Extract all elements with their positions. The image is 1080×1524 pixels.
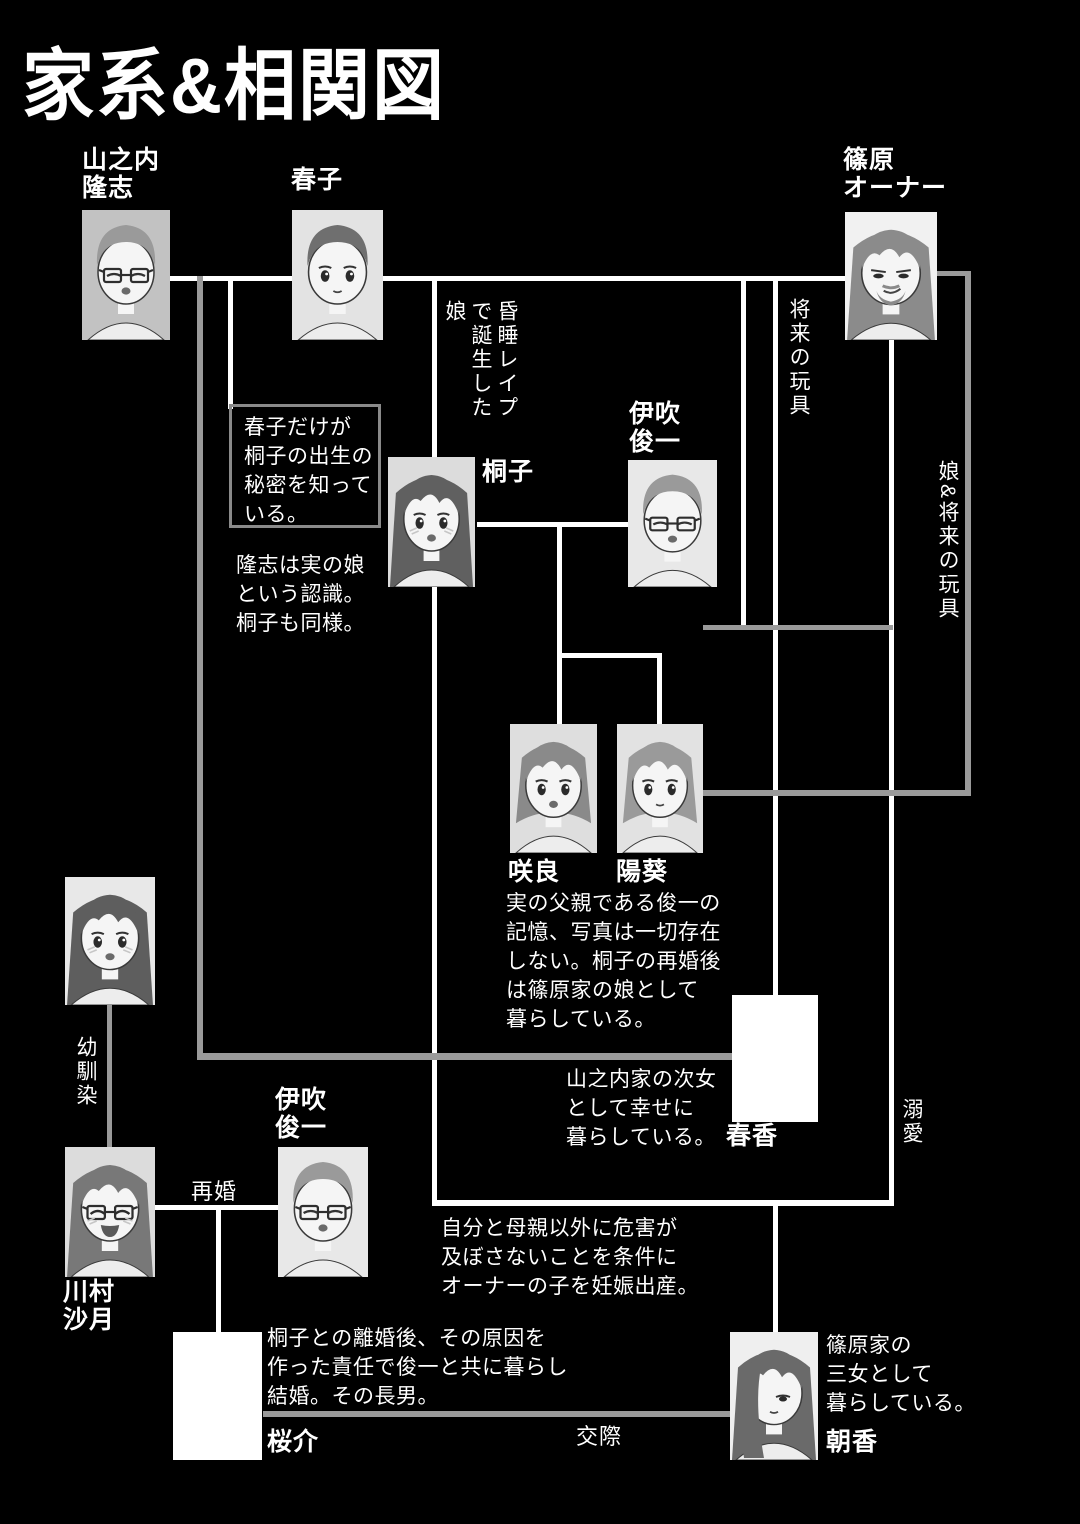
- portrait-friend: [65, 877, 155, 1005]
- note-haruko-secret: 春子だけが 桐子の出生の 秘密を知って いる。: [244, 414, 373, 530]
- relationship-dating: 交際: [576, 1419, 622, 1451]
- line-drop-to-ousuke: [216, 1205, 221, 1334]
- family-relationship-chart: 家系&相関図 山之内 隆志 春子 篠原 オーナー 桐子 伊吹 俊一 咲良 陽葵 …: [0, 0, 1080, 1524]
- label-asaka: 朝香: [826, 1428, 878, 1456]
- line-drop-to-asaka: [773, 1203, 778, 1334]
- line-drop-to-haruka: [773, 276, 778, 997]
- portrait-satsuki: [65, 1147, 155, 1277]
- relationship-remarriage: 再婚: [191, 1174, 237, 1206]
- relationship-childhood-friend: 幼馴染: [72, 1036, 98, 1128]
- gline-owner-haruka-connector: [703, 625, 893, 630]
- line-owner-down: [889, 340, 894, 1203]
- placeholder-box-ousuke: [173, 1332, 262, 1460]
- relationship-comatose-rape-daughter: 昏睡レイプで誕生した娘: [441, 300, 519, 438]
- relationship-doting: 溺愛: [898, 1098, 924, 1162]
- note-asaka: 篠原家の 三女として 暮らしている。: [826, 1332, 976, 1419]
- line-kiriko-shunichi-children: [557, 522, 562, 658]
- label-owner: 篠原 オーナー: [843, 146, 947, 202]
- gline-parents-to-haruka-horizontal: [197, 1053, 734, 1060]
- gline-owner-to-daughters-horizontal: [703, 790, 971, 796]
- line-children-tbar: [557, 653, 662, 658]
- gline-parents-to-haruka-vertical: [197, 276, 203, 1057]
- relationship-daughter-and-future-toy: 娘&将来の玩具: [934, 460, 960, 632]
- portrait-sakura: [510, 724, 597, 853]
- label-himari: 陽葵: [616, 858, 668, 886]
- note-haruka: 山之内家の次女 として幸せに 暮らしている。: [566, 1066, 717, 1153]
- note-kiriko-deal: 自分と母親以外に危害が 及ぼさないことを条件に オーナーの子を妊娠出産。: [441, 1215, 699, 1302]
- label-sakura: 咲良: [508, 858, 560, 886]
- note-takashi-recognition: 隆志は実の娘 という認識。 桐子も同様。: [236, 552, 365, 639]
- line-drop-to-himari: [657, 653, 662, 726]
- portrait-owner: [845, 212, 937, 340]
- label-takashi: 山之内 隆志: [82, 146, 160, 202]
- label-shunichi2: 伊吹 俊一: [275, 1086, 327, 1142]
- line-drop-to-sakura: [557, 653, 562, 726]
- label-shunichi: 伊吹 俊一: [629, 400, 681, 456]
- page-title: 家系&相関図: [22, 22, 446, 135]
- label-satsuki: 川村 沙月: [63, 1278, 115, 1334]
- line-couple-kiriko-owner: [432, 1200, 894, 1206]
- label-kiriko: 桐子: [482, 458, 534, 486]
- note-ousuke: 桐子との離婚後、その原因を 作った責任で俊一と共に暮らし 結婚。その長男。: [267, 1325, 568, 1412]
- portrait-asaka: [730, 1332, 818, 1460]
- label-haruka: 春香: [726, 1122, 778, 1150]
- line-to-secret-note: [228, 276, 233, 409]
- line-drop-to-kiriko: [432, 276, 437, 459]
- gline-owner-to-daughters-vertical: [965, 271, 971, 796]
- portrait-shunichi2: [278, 1147, 368, 1277]
- portrait-shunichi: [628, 460, 717, 587]
- secret-note-box: 春子だけが 桐子の出生の 秘密を知って いる。: [229, 404, 381, 528]
- placeholder-box-haruka: [732, 995, 818, 1122]
- portrait-himari: [617, 724, 703, 853]
- portrait-kiriko: [388, 457, 475, 587]
- portrait-takashi: [82, 210, 170, 340]
- line-couple-kiriko-shunichi: [477, 522, 628, 527]
- gline-childhood-friend: [107, 1005, 112, 1147]
- line-owner-branch: [741, 276, 746, 628]
- portrait-haruko: [292, 210, 383, 340]
- line-kiriko-down: [432, 587, 437, 1205]
- note-twins: 実の父親である俊一の 記憶、写真は一切存在 しない。桐子の再婚後 は篠原家の娘と…: [506, 890, 721, 1035]
- relationship-future-toy: 将来の玩具: [785, 298, 811, 438]
- label-ousuke: 桜介: [267, 1428, 319, 1456]
- label-haruko: 春子: [291, 166, 343, 194]
